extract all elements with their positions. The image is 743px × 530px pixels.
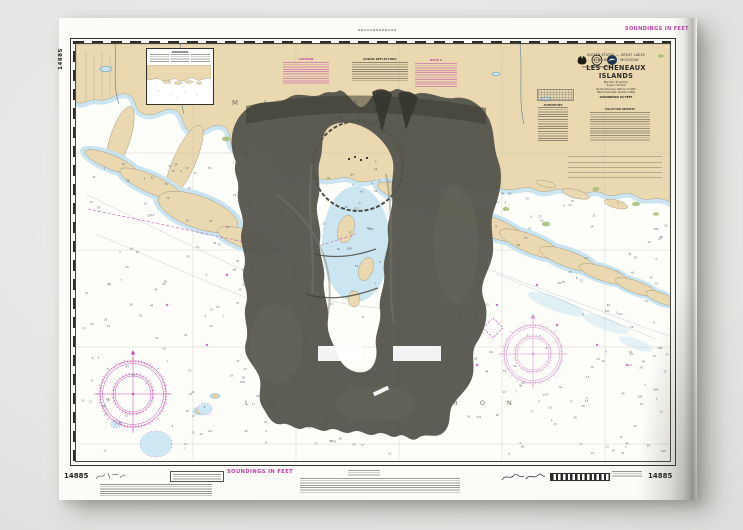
svg-text:42: 42 <box>151 175 155 179</box>
chart-sheet: 14885 SOUNDINGS IN FEET <box>59 18 697 500</box>
inset-table-col <box>150 54 169 63</box>
commerce-eagle-icon <box>578 56 587 65</box>
svg-text:31: 31 <box>628 252 632 256</box>
svg-text:8: 8 <box>508 452 510 456</box>
svg-text:34: 34 <box>208 166 212 170</box>
svg-text:21: 21 <box>591 451 595 455</box>
svg-text:16: 16 <box>659 410 663 414</box>
svg-text:52: 52 <box>559 385 563 389</box>
svg-text:3: 3 <box>644 383 646 387</box>
note-a-text <box>415 63 457 87</box>
svg-text:65: 65 <box>163 347 167 351</box>
svg-text:24: 24 <box>621 391 625 395</box>
svg-text:26: 26 <box>474 356 478 360</box>
svg-text:84: 84 <box>642 360 646 364</box>
svg-text:21: 21 <box>592 214 596 218</box>
svg-text:15: 15 <box>136 250 140 254</box>
bottom-small-print <box>348 470 380 476</box>
svg-text:21: 21 <box>196 245 200 249</box>
svg-text:97: 97 <box>630 352 634 356</box>
svg-text:72: 72 <box>172 169 176 173</box>
svg-text:16: 16 <box>345 205 349 209</box>
svg-text:4: 4 <box>265 429 267 433</box>
svg-text:108: 108 <box>368 227 373 231</box>
radar-note-block: RADAR REFLECTORS <box>352 57 408 81</box>
svg-text:29: 29 <box>107 399 111 403</box>
svg-text:21: 21 <box>580 279 584 283</box>
svg-text:17: 17 <box>530 410 534 414</box>
authorities-text <box>538 107 568 117</box>
svg-text:11: 11 <box>486 302 490 306</box>
svg-text:23: 23 <box>108 282 112 286</box>
seal-icon <box>592 55 602 65</box>
svg-text:7: 7 <box>515 389 517 393</box>
svg-text:31: 31 <box>132 373 136 377</box>
svg-text:8: 8 <box>576 276 578 280</box>
svg-text:121: 121 <box>617 312 622 316</box>
note-a-heading: NOTE A <box>430 58 442 62</box>
svg-text:13: 13 <box>185 166 189 170</box>
svg-text:12: 12 <box>633 424 637 428</box>
chart-number-left-margin: 14885 <box>58 48 64 70</box>
svg-text:29: 29 <box>242 376 246 380</box>
svg-text:72: 72 <box>151 213 155 217</box>
svg-text:23: 23 <box>374 167 378 171</box>
svg-text:46: 46 <box>244 429 248 433</box>
svg-text:12: 12 <box>217 242 221 246</box>
svg-text:84: 84 <box>517 243 521 247</box>
chart-face: 3112137846152652121919347251324461088173… <box>76 44 670 461</box>
svg-text:11: 11 <box>85 291 89 295</box>
title-soundings-line: SOUNDINGS IN FEET <box>574 95 658 99</box>
svg-text:3: 3 <box>625 445 627 449</box>
svg-text:29: 29 <box>97 206 101 210</box>
authorities-text2 <box>538 119 568 129</box>
svg-text:19: 19 <box>528 227 532 231</box>
chart-panel-diagram <box>537 89 574 101</box>
inset-map <box>146 48 214 105</box>
caution-note-block: CAUTION <box>283 57 329 84</box>
svg-text:11: 11 <box>103 449 107 453</box>
svg-text:58: 58 <box>508 192 512 196</box>
svg-text:52: 52 <box>186 219 190 223</box>
svg-text:12: 12 <box>621 451 625 455</box>
svg-text:52: 52 <box>548 406 552 410</box>
svg-text:52: 52 <box>525 197 529 201</box>
noaa-icon <box>607 55 617 65</box>
svg-text:65: 65 <box>562 280 566 284</box>
svg-text:97: 97 <box>545 392 549 396</box>
inset-table-col <box>171 54 190 63</box>
svg-text:29: 29 <box>639 365 643 369</box>
soundings-note-top: SOUNDINGS IN FEET <box>625 26 689 32</box>
svg-text:13: 13 <box>144 201 148 205</box>
svg-text:21: 21 <box>200 432 204 436</box>
inset-table-col <box>191 54 210 63</box>
svg-text:21: 21 <box>192 430 196 434</box>
authorities-text3 <box>538 131 568 141</box>
svg-text:17: 17 <box>192 414 196 418</box>
svg-text:37: 37 <box>236 301 240 305</box>
svg-text:24: 24 <box>590 224 594 228</box>
svg-text:11: 11 <box>377 179 381 183</box>
svg-text:46: 46 <box>485 370 489 374</box>
svg-text:23: 23 <box>243 367 247 371</box>
svg-text:65: 65 <box>540 218 544 222</box>
svg-text:17: 17 <box>90 379 94 383</box>
svg-text:34: 34 <box>174 163 178 167</box>
svg-text:24: 24 <box>233 193 237 197</box>
svg-text:23: 23 <box>236 359 240 363</box>
svg-text:11: 11 <box>82 326 86 330</box>
svg-text:34: 34 <box>130 246 134 250</box>
svg-text:37: 37 <box>666 352 670 356</box>
svg-text:121: 121 <box>354 207 359 211</box>
svg-text:72: 72 <box>164 182 168 186</box>
svg-text:58: 58 <box>126 179 130 183</box>
svg-text:7: 7 <box>166 359 168 363</box>
boxed-note-text <box>173 474 221 480</box>
svg-text:58: 58 <box>521 445 525 449</box>
svg-text:46: 46 <box>118 421 122 425</box>
svg-text:21: 21 <box>81 398 85 402</box>
svg-text:15: 15 <box>348 231 352 235</box>
svg-text:17: 17 <box>663 370 667 374</box>
tabulation-lines <box>568 156 662 178</box>
svg-text:15: 15 <box>125 414 129 418</box>
svg-text:37: 37 <box>361 443 365 447</box>
bottom-boxed-note <box>170 471 224 482</box>
svg-text:19: 19 <box>264 420 268 424</box>
title-block: UNITED STATES — GREAT LAKES LAKE HURON ·… <box>574 53 658 99</box>
svg-text:58: 58 <box>339 437 343 441</box>
svg-text:108: 108 <box>240 380 245 384</box>
svg-text:31: 31 <box>355 264 359 268</box>
svg-text:24: 24 <box>154 288 158 292</box>
compass-rose-west <box>94 350 172 433</box>
svg-text:58: 58 <box>147 213 151 217</box>
svg-text:19: 19 <box>513 364 517 368</box>
svg-text:19: 19 <box>184 333 188 337</box>
svg-text:108: 108 <box>347 247 352 251</box>
svg-text:58: 58 <box>213 241 217 245</box>
radar-note-heading: RADAR REFLECTORS <box>363 57 396 61</box>
svg-text:13: 13 <box>104 413 108 417</box>
top-margin-fine-print <box>358 29 396 31</box>
svg-text:9: 9 <box>530 215 532 219</box>
note-a-block: NOTE A <box>415 58 457 87</box>
svg-text:65: 65 <box>164 279 168 283</box>
svg-text:52: 52 <box>90 200 94 204</box>
pencil-annotation <box>94 470 126 482</box>
svg-text:26: 26 <box>573 415 577 419</box>
svg-text:9: 9 <box>653 321 655 325</box>
svg-text:15: 15 <box>553 422 557 426</box>
svg-text:9: 9 <box>538 400 540 404</box>
svg-text:46: 46 <box>496 413 500 417</box>
svg-text:11: 11 <box>184 442 188 446</box>
svg-text:58: 58 <box>129 302 133 306</box>
svg-text:16: 16 <box>649 276 653 280</box>
svg-text:16: 16 <box>581 404 585 408</box>
svg-text:65: 65 <box>521 381 525 385</box>
svg-text:42: 42 <box>360 190 364 194</box>
svg-text:97: 97 <box>209 219 213 223</box>
svg-text:12: 12 <box>630 325 634 329</box>
inset-title-line <box>172 51 188 53</box>
svg-text:31: 31 <box>168 164 172 168</box>
svg-text:84: 84 <box>489 350 493 354</box>
svg-text:121: 121 <box>605 309 610 313</box>
svg-text:26: 26 <box>327 176 331 180</box>
svg-text:31: 31 <box>155 336 159 340</box>
svg-text:4: 4 <box>98 355 100 359</box>
photo-backdrop: 14885 SOUNDINGS IN FEET <box>0 0 743 530</box>
soundings-note-bottom: SOUNDINGS IN FEET <box>227 469 293 475</box>
pollution-heading: POLLUTION REPORTS <box>605 108 635 111</box>
scale-line: Scale 1:30,000 <box>574 84 658 87</box>
svg-text:84: 84 <box>125 365 129 369</box>
svg-text:16: 16 <box>590 365 594 369</box>
svg-text:6: 6 <box>563 203 565 207</box>
svg-text:15: 15 <box>238 288 242 292</box>
svg-text:19: 19 <box>634 256 638 260</box>
svg-text:31: 31 <box>107 324 111 328</box>
svg-text:65: 65 <box>90 322 94 326</box>
svg-text:4: 4 <box>505 201 507 205</box>
svg-text:6: 6 <box>655 257 657 261</box>
svg-text:52: 52 <box>503 369 507 373</box>
svg-text:3: 3 <box>206 273 208 277</box>
svg-text:29: 29 <box>226 225 230 229</box>
chart-number-bottom-left: 14885 <box>64 472 88 480</box>
svg-text:12: 12 <box>188 186 192 190</box>
bottom-left-fine-print <box>100 484 212 496</box>
svg-text:17: 17 <box>579 442 583 446</box>
svg-text:15: 15 <box>216 305 220 309</box>
bar-scale <box>550 473 610 481</box>
svg-text:4: 4 <box>551 419 553 423</box>
svg-text:42: 42 <box>601 359 605 363</box>
svg-text:42: 42 <box>353 442 357 446</box>
svg-text:84: 84 <box>607 303 611 307</box>
svg-text:72: 72 <box>569 400 573 404</box>
svg-text:21: 21 <box>653 354 657 358</box>
svg-text:121: 121 <box>476 415 481 419</box>
svg-text:34: 34 <box>596 357 600 361</box>
svg-text:52: 52 <box>139 314 143 318</box>
svg-text:97: 97 <box>524 236 528 240</box>
svg-text:108: 108 <box>653 227 658 231</box>
svg-text:108: 108 <box>657 346 662 350</box>
svg-text:42: 42 <box>191 390 195 394</box>
svg-text:72: 72 <box>644 299 648 303</box>
svg-text:7: 7 <box>120 278 122 282</box>
svg-text:29: 29 <box>230 374 234 378</box>
svg-text:7: 7 <box>222 315 224 319</box>
chart-number-bottom-right: 14885 <box>648 472 672 480</box>
svg-text:5: 5 <box>656 397 658 401</box>
svg-text:84: 84 <box>350 173 354 177</box>
svg-text:7: 7 <box>539 334 541 338</box>
svg-text:26: 26 <box>664 223 668 227</box>
bottom-center-fine-print <box>300 478 460 493</box>
svg-text:108: 108 <box>661 449 666 453</box>
svg-text:23: 23 <box>640 402 644 406</box>
authorities-note-block: AUTHORITIES <box>538 104 568 143</box>
svg-text:34: 34 <box>571 199 575 203</box>
svg-text:65: 65 <box>125 265 129 269</box>
svg-text:23: 23 <box>322 222 326 226</box>
svg-text:5: 5 <box>119 250 121 254</box>
svg-text:26: 26 <box>467 415 471 419</box>
svg-text:26: 26 <box>104 318 108 322</box>
pollution-text <box>590 112 650 142</box>
svg-text:15: 15 <box>188 369 192 373</box>
svg-text:97: 97 <box>659 235 663 239</box>
svg-text:37: 37 <box>361 315 365 319</box>
svg-text:19: 19 <box>186 409 190 413</box>
inset-table <box>147 54 213 63</box>
svg-text:84: 84 <box>501 192 505 196</box>
svg-text:13: 13 <box>620 435 624 439</box>
svg-text:24: 24 <box>92 175 96 179</box>
svg-text:29: 29 <box>569 270 573 274</box>
svg-text:12: 12 <box>333 439 337 443</box>
svg-text:31: 31 <box>89 400 93 404</box>
svg-text:72: 72 <box>166 196 170 200</box>
svg-text:108: 108 <box>637 395 642 399</box>
svg-text:6: 6 <box>172 424 174 428</box>
svg-text:37: 37 <box>314 441 318 445</box>
svg-text:34: 34 <box>584 256 588 260</box>
caution-note-heading: CAUTION <box>299 57 314 61</box>
svg-text:7: 7 <box>183 447 185 451</box>
svg-text:13: 13 <box>585 399 589 403</box>
svg-text:4: 4 <box>204 314 206 318</box>
svg-text:13: 13 <box>503 390 507 394</box>
svg-text:26: 26 <box>256 394 260 398</box>
agency-logos <box>574 53 620 68</box>
svg-text:65: 65 <box>612 448 616 452</box>
svg-text:46: 46 <box>150 304 154 308</box>
svg-text:21: 21 <box>648 240 652 244</box>
svg-text:15: 15 <box>655 282 659 286</box>
svg-text:46: 46 <box>631 271 635 275</box>
radar-note-text <box>352 62 408 81</box>
svg-text:13: 13 <box>586 375 590 379</box>
svg-text:72: 72 <box>538 215 542 219</box>
svg-text:23: 23 <box>209 324 213 328</box>
svg-text:34: 34 <box>568 203 572 207</box>
svg-text:23: 23 <box>374 189 378 193</box>
pollution-note-block: POLLUTION REPORTS <box>590 108 650 142</box>
svg-text:15: 15 <box>236 259 240 263</box>
svg-text:31: 31 <box>388 451 392 455</box>
bottom-right-fine-print <box>612 471 642 478</box>
svg-text:108: 108 <box>101 404 106 408</box>
inset-map-art <box>147 65 211 101</box>
svg-text:6: 6 <box>92 356 94 360</box>
svg-text:121: 121 <box>207 429 212 433</box>
svg-text:13: 13 <box>210 308 214 312</box>
svg-text:29: 29 <box>186 254 190 258</box>
datum-note-line: (World Geodetic System 1984) <box>574 91 658 94</box>
svg-text:16: 16 <box>122 162 126 166</box>
svg-text:6: 6 <box>100 386 102 390</box>
caution-note-text <box>283 62 329 84</box>
svg-text:6: 6 <box>606 349 608 353</box>
svg-text:108: 108 <box>653 388 658 392</box>
svg-text:29: 29 <box>647 444 651 448</box>
chart-artwork: 3112137846152652121919347251324461088173… <box>76 44 670 461</box>
svg-text:52: 52 <box>628 363 632 367</box>
svg-text:46: 46 <box>337 247 341 251</box>
signatures <box>500 471 546 484</box>
svg-text:11: 11 <box>194 171 198 175</box>
svg-text:13: 13 <box>606 445 610 449</box>
